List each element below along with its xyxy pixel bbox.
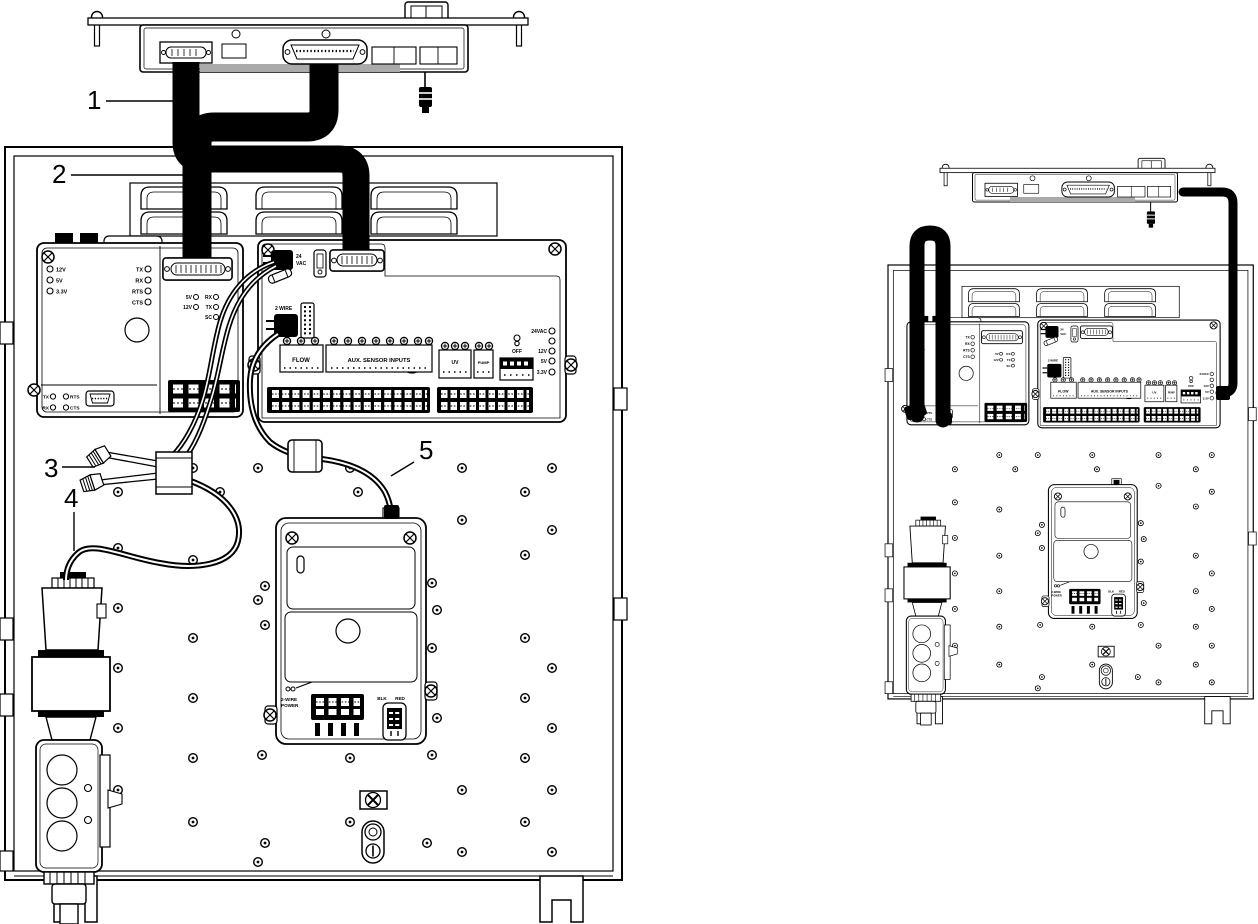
svg-text:24: 24 [296, 254, 302, 260]
callout-3: 3 [44, 453, 58, 483]
housing-shade [200, 64, 400, 72]
cable-clamp [288, 440, 322, 472]
mount-ear-right [565, 356, 577, 374]
svg-text:12V: 12V [56, 268, 66, 274]
svg-text:5V: 5V [541, 359, 548, 365]
power-module: 2-WIRE POWER BLK RED [264, 508, 437, 744]
callout-1: 1 [87, 85, 101, 115]
svg-text:RTS: RTS [132, 290, 143, 296]
battery-bay [420, 47, 457, 64]
ribbon-connector-overlay [330, 250, 384, 271]
svg-text:5V: 5V [186, 295, 193, 301]
svg-text:RX: RX [42, 406, 49, 412]
equipment-enclosure: 12V 5V 3.3V TX RX RTS CTS TX RX RTS CTS [0, 147, 627, 924]
svg-text:SC: SC [205, 315, 212, 321]
svg-text:3.3V: 3.3V [537, 370, 548, 376]
mount-screw-left [92, 12, 103, 47]
callout-2: 2 [52, 159, 66, 189]
hanging-plug [419, 72, 432, 113]
svg-text:RTS: RTS [70, 395, 80, 401]
terminal-strip-b [437, 387, 533, 413]
svg-text:TX: TX [136, 268, 143, 274]
mounting-feet [54, 876, 583, 922]
svg-text:AUX. SENSOR INPUTS: AUX. SENSOR INPUTS [348, 358, 411, 364]
svg-text:12V: 12V [183, 305, 193, 311]
svg-text:2-WIRE: 2-WIRE [281, 697, 297, 702]
power-cable-connector [384, 505, 399, 519]
svg-text:TX: TX [206, 305, 213, 311]
uv-terminal: UV [439, 342, 471, 378]
keyhole-slot [362, 821, 384, 863]
ground-screw [360, 791, 387, 809]
db9-connector [86, 391, 114, 406]
svg-text:OFF: OFF [512, 349, 522, 355]
svg-text:RED: RED [395, 696, 405, 701]
svg-text:TX: TX [43, 395, 50, 401]
mount-flange [88, 18, 528, 25]
callout-5: 5 [419, 435, 433, 465]
technical-diagram-page: 12V 5V 3.3V TX RX RTS CTS TX RX RTS CTS [0, 0, 1258, 924]
mount-screw-right [514, 12, 525, 47]
flow-terminal: FLOW [280, 337, 323, 372]
svg-text:BLK: BLK [377, 696, 387, 701]
display-ribbon-connector [160, 42, 212, 63]
housing-hole [322, 30, 330, 38]
svg-text:2 WIRE: 2 WIRE [275, 306, 293, 312]
callout-4: 4 [64, 483, 78, 513]
housing-cutout [222, 44, 246, 58]
svg-text:RX: RX [135, 279, 143, 285]
db25-connector [283, 40, 367, 64]
svg-text:5V: 5V [56, 279, 63, 285]
wiring-diagram: 12V 5V 3.3V TX RX RTS CTS TX RX RTS CTS [0, 0, 1258, 924]
svg-text:PUMP: PUMP [478, 360, 490, 365]
terminal-strip-a [267, 387, 430, 413]
svg-text:3.3V: 3.3V [56, 290, 68, 296]
loop-cable-end [936, 412, 952, 425]
svg-text:UV: UV [452, 360, 460, 366]
ribbon-connector-overlay [163, 258, 232, 280]
svg-text:12V: 12V [538, 349, 548, 355]
housing-hole [232, 30, 240, 38]
relay-connector [500, 358, 533, 380]
svg-text:FLOW: FLOW [292, 358, 310, 364]
svg-text:POWER: POWER [281, 703, 299, 708]
main-board-module: 24 VAC 2 WIRE [248, 240, 577, 422]
svg-text:RX: RX [205, 295, 213, 301]
svg-text:VAC: VAC [296, 261, 307, 267]
piezo-speaker [125, 318, 149, 342]
controller-display-rear-small [940, 158, 1215, 227]
svg-text:24VAC: 24VAC [531, 329, 547, 335]
svg-text:CTS: CTS [132, 301, 143, 307]
svg-text:CTS: CTS [70, 406, 80, 412]
controller-display-rear [88, 2, 528, 113]
right-cable-connector [1216, 386, 1230, 400]
slot-connector [314, 250, 326, 277]
